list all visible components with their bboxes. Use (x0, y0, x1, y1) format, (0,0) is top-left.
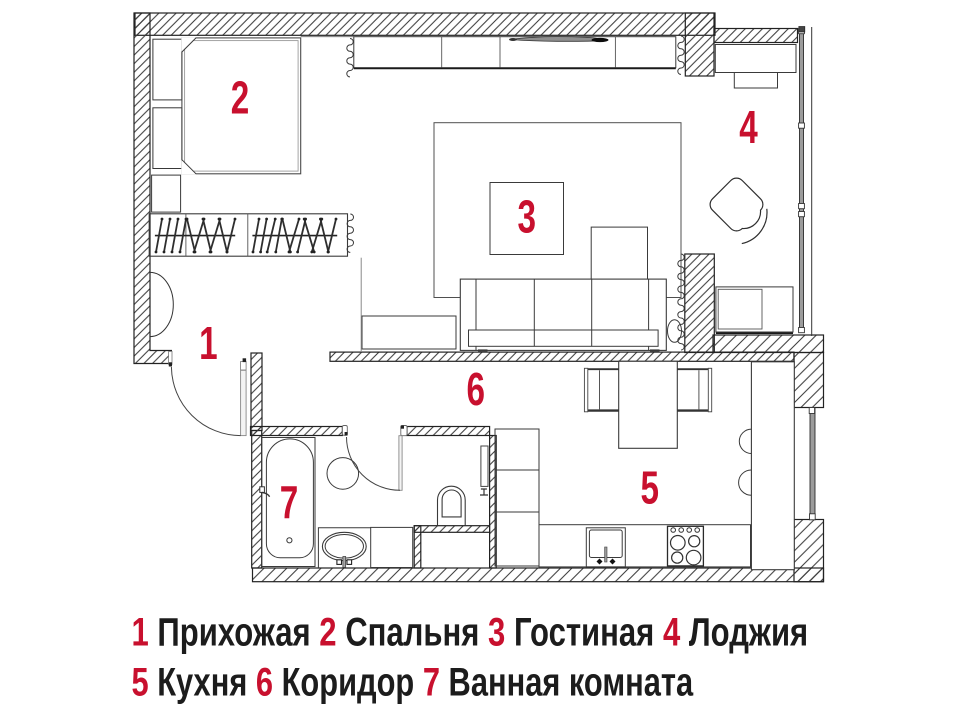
svg-text:3: 3 (517, 190, 535, 243)
svg-text:4: 4 (739, 100, 758, 153)
svg-text:5 Кухня 6 Коридор 7 Ванная ком: 5 Кухня 6 Коридор 7 Ванная комната (132, 660, 695, 705)
svg-text:2: 2 (231, 71, 249, 124)
svg-text:1 Прихожая 2 Спальня 3 Гостина: 1 Прихожая 2 Спальня 3 Гостиная 4 Лоджия (132, 610, 809, 655)
svg-text:7: 7 (280, 476, 298, 529)
svg-text:1: 1 (199, 317, 217, 370)
svg-text:6: 6 (466, 363, 484, 416)
svg-text:5: 5 (640, 461, 658, 514)
